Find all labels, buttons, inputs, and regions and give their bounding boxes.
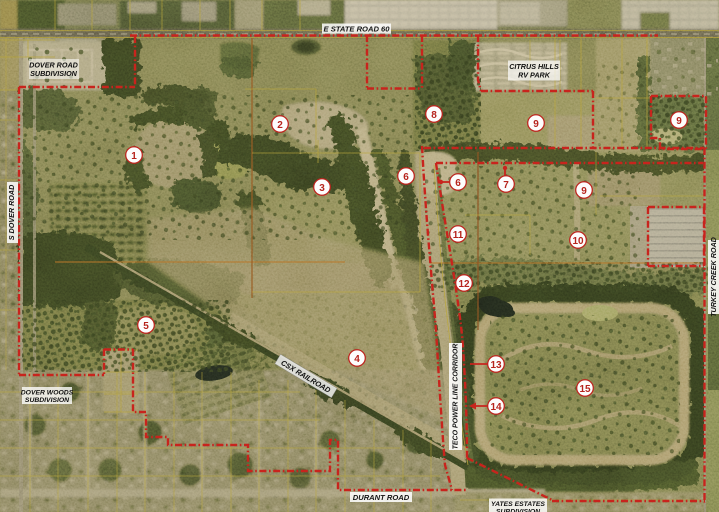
svg-text:10: 10 <box>572 236 584 247</box>
svg-text:9: 9 <box>533 119 539 130</box>
svg-text:SUBDIVISION: SUBDIVISION <box>30 69 78 78</box>
svg-text:13: 13 <box>490 360 502 371</box>
svg-text:6: 6 <box>455 178 461 189</box>
svg-text:2: 2 <box>277 120 283 131</box>
svg-text:DURANT ROAD: DURANT ROAD <box>353 493 410 502</box>
svg-text:3: 3 <box>319 183 325 194</box>
svg-text:9: 9 <box>676 116 682 127</box>
svg-text:YATES ESTATES: YATES ESTATES <box>491 501 545 508</box>
svg-text:SUBDIVISION: SUBDIVISION <box>496 509 541 512</box>
svg-text:1: 1 <box>131 151 137 162</box>
svg-text:15: 15 <box>579 384 591 395</box>
svg-text:4: 4 <box>354 354 360 365</box>
svg-text:7: 7 <box>503 180 509 191</box>
svg-text:SUBDIVISION: SUBDIVISION <box>25 397 70 404</box>
svg-text:TECO POWER LINE CORRIDOR: TECO POWER LINE CORRIDOR <box>453 344 460 450</box>
svg-text:5: 5 <box>143 321 149 332</box>
svg-text:TURKEY CREEK ROAD: TURKEY CREEK ROAD <box>709 237 718 317</box>
svg-text:14: 14 <box>490 402 502 413</box>
svg-text:6: 6 <box>403 172 409 183</box>
svg-text:12: 12 <box>458 279 470 290</box>
svg-text:8: 8 <box>431 110 437 121</box>
svg-text:DOVER WOODS: DOVER WOODS <box>21 390 74 397</box>
svg-text:RV PARK: RV PARK <box>518 71 551 80</box>
svg-text:S DOVER ROAD: S DOVER ROAD <box>7 185 16 241</box>
svg-text:11: 11 <box>453 230 464 241</box>
svg-text:9: 9 <box>581 186 587 197</box>
svg-text:E STATE ROAD 60: E STATE ROAD 60 <box>324 25 391 34</box>
